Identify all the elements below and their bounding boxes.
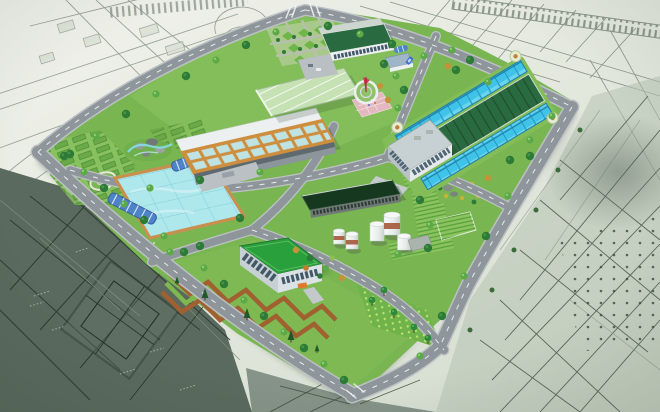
water-treatment-plant-rendering [0,0,660,412]
vignette-overlay [0,0,660,412]
screenshot-root [0,0,660,412]
